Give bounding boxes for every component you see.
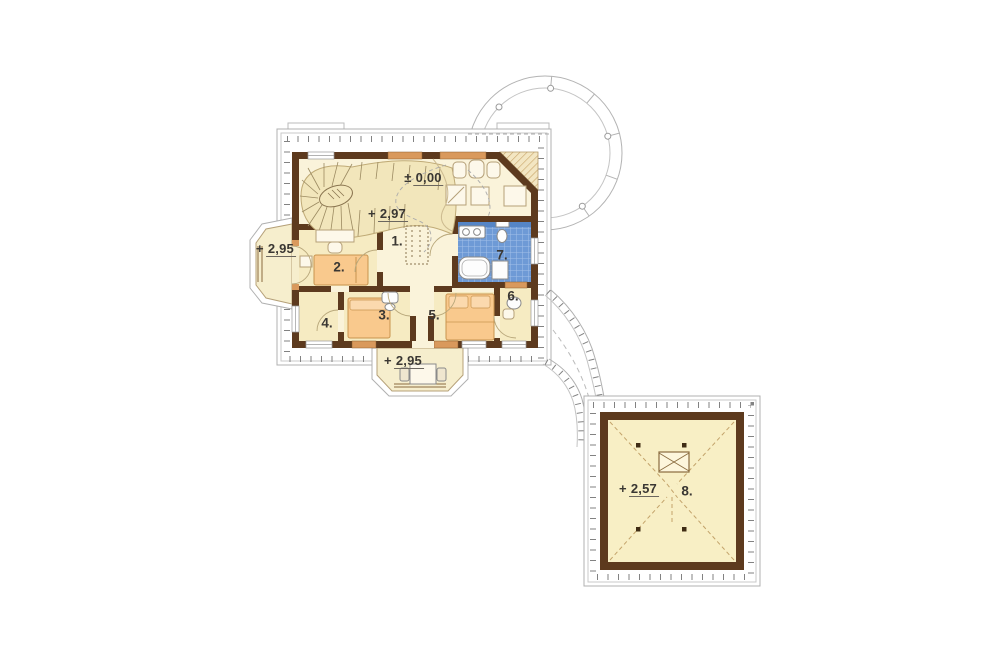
- toilet-bowl: [497, 230, 507, 243]
- room-label-bedroom-left: 2.: [333, 260, 344, 275]
- desk: [316, 230, 354, 242]
- annex-post: [636, 527, 641, 532]
- pillow: [471, 296, 490, 308]
- terrace-column: [605, 133, 611, 139]
- bay-window-left: [250, 218, 292, 309]
- elevation-sign: +: [619, 481, 627, 496]
- chair: [487, 162, 500, 178]
- annex-post: [636, 443, 641, 448]
- elevation-sign: +: [368, 206, 376, 221]
- elevation-sign: +: [256, 241, 264, 256]
- sink: [463, 229, 470, 236]
- chair: [328, 242, 342, 253]
- sink: [474, 229, 481, 236]
- bathroom: [458, 218, 531, 282]
- room3-furniture: [348, 292, 398, 338]
- room-label-room-right: 6.: [507, 289, 518, 304]
- elevation-ground: ±0,00: [404, 170, 443, 186]
- room-label-bathroom: 7.: [496, 248, 507, 263]
- door-tan: [505, 282, 527, 288]
- bay-chair: [400, 368, 409, 381]
- window-tan: [352, 341, 376, 348]
- annex-post: [682, 527, 687, 532]
- window-tan: [388, 152, 422, 159]
- room-label-room-small: 4.: [321, 316, 332, 331]
- corridor-opening: [412, 341, 434, 348]
- walkway-ticks-sw: [546, 362, 581, 448]
- elevation-annex: +2,57: [619, 481, 659, 497]
- annex-skylight: [659, 452, 689, 472]
- table: [471, 187, 489, 205]
- elevation-bay-bottom: +2,95: [384, 353, 424, 369]
- shower: [492, 261, 508, 279]
- floor-plan-page: ±0,00 +2,97 +2,95 +2,95 +2,57 1. 2. 3. 4…: [0, 0, 1000, 666]
- room-label-bedroom-big: 5.: [428, 308, 439, 323]
- elevation-bay-left: +2,95: [256, 241, 296, 257]
- elevation-landing: +2,97: [368, 206, 408, 222]
- washbasin: [382, 292, 398, 303]
- room5-furniture: [446, 294, 494, 340]
- chair: [453, 162, 466, 178]
- terrace-column: [496, 104, 502, 110]
- nightstand: [300, 256, 312, 267]
- elevation-sign: ±: [404, 170, 411, 185]
- floor-plan-drawing: [0, 0, 1000, 666]
- window-tan: [292, 284, 299, 290]
- chair: [469, 160, 484, 178]
- room-label-hall: 1.: [391, 234, 402, 249]
- room-label-bedroom-mid: 3.: [378, 308, 389, 323]
- room-label-annex: 8.: [681, 484, 692, 499]
- terrace-column: [548, 85, 554, 91]
- elevation-sign: +: [384, 353, 392, 368]
- annex-post: [682, 443, 687, 448]
- bay-chair: [437, 368, 446, 381]
- annex-building: [584, 396, 760, 586]
- window-tan: [434, 341, 458, 348]
- cabinet: [504, 186, 526, 206]
- terrace-column: [579, 203, 585, 209]
- chair: [503, 309, 514, 319]
- window-tan: [440, 152, 486, 159]
